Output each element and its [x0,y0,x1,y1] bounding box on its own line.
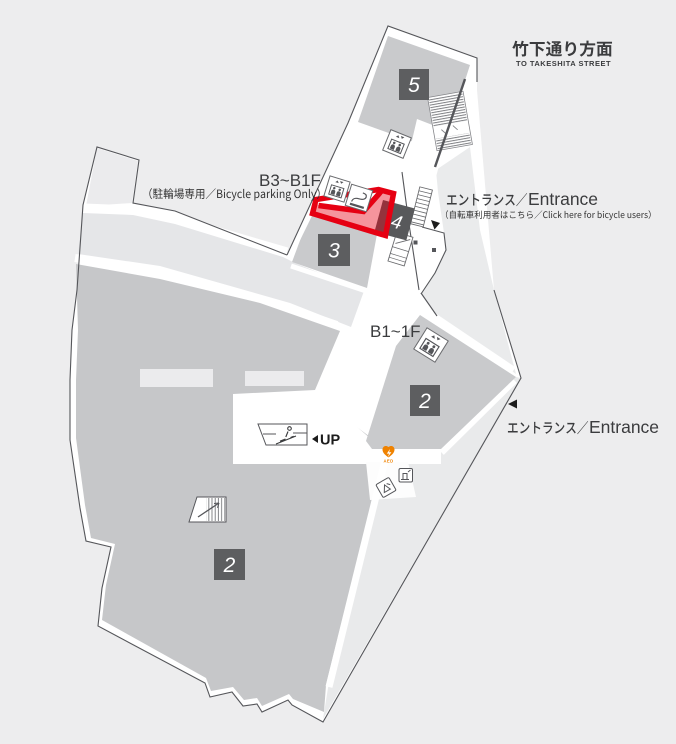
svg-text:Entrance: Entrance [528,189,598,209]
svg-text:5: 5 [408,74,420,97]
svg-text:UP: UP [320,433,340,449]
svg-text:B3~B1F: B3~B1F [259,171,321,190]
svg-text:2: 2 [418,390,431,413]
svg-text:2: 2 [223,554,236,577]
svg-text:B1~1F: B1~1F [370,322,421,341]
svg-text:AED: AED [383,459,393,464]
svg-text:3: 3 [328,240,340,263]
svg-text:Entrance: Entrance [589,417,659,437]
svg-text:TO TAKESHITA STREET: TO TAKESHITA STREET [516,59,611,68]
